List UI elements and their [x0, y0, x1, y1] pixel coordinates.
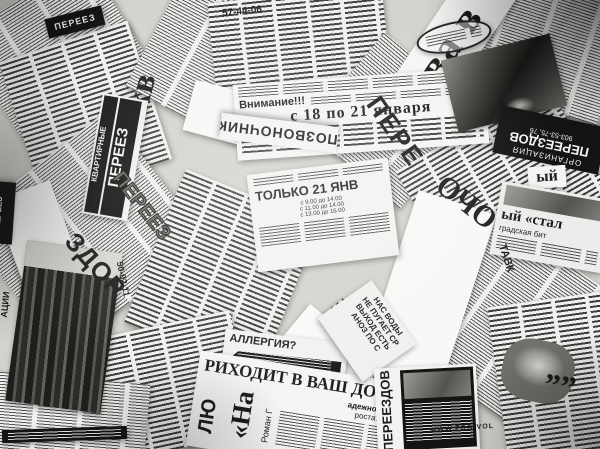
ad-photo: [403, 370, 471, 399]
roman-byline: Роман Г: [259, 387, 277, 443]
newspaper-collage-photo: осква в ПЕРЕЕЗ кв КВАРТИРНЫЕ ПЕРЕЕЗ ПЕРЕ…: [0, 0, 600, 449]
na-fragment: «На: [223, 382, 262, 441]
lyu-fragment: ЛЮ: [194, 377, 225, 435]
pereezdov-vertical-label: ПЕРЕЕЗДОВ: [377, 371, 401, 449]
scrap-tolko-ad: ТОЛЬКО 21 ЯНВ с 9.00 до 14.00 с 11.00 до…: [247, 158, 400, 273]
quote-marks: ””: [542, 366, 579, 407]
